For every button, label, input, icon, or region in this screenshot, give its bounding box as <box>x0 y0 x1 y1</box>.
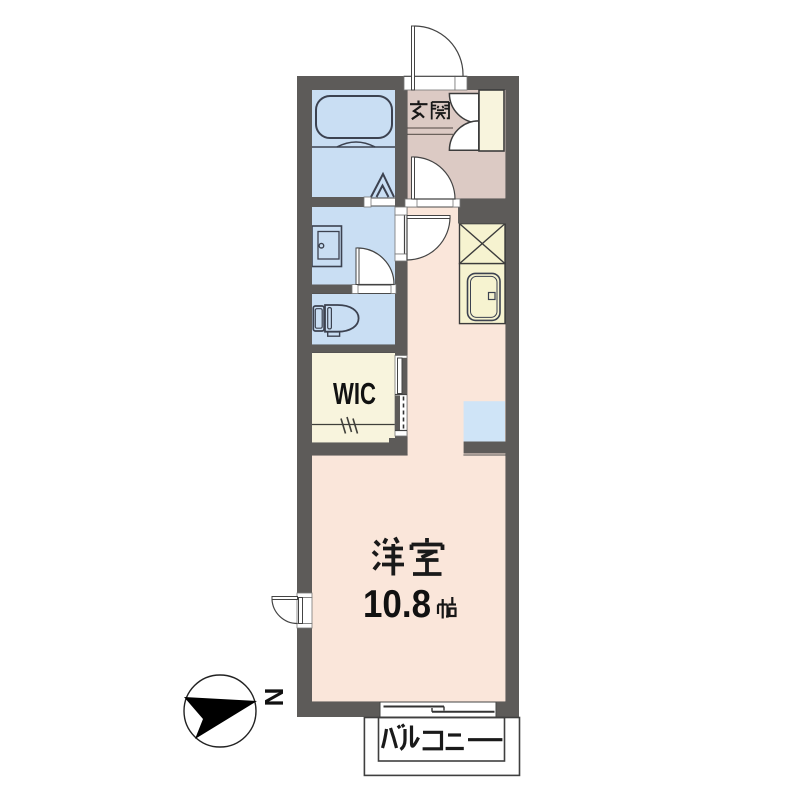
svg-text:N: N <box>259 688 289 707</box>
svg-text:10.8: 10.8 <box>363 583 431 626</box>
svg-text:WIC: WIC <box>333 376 376 411</box>
